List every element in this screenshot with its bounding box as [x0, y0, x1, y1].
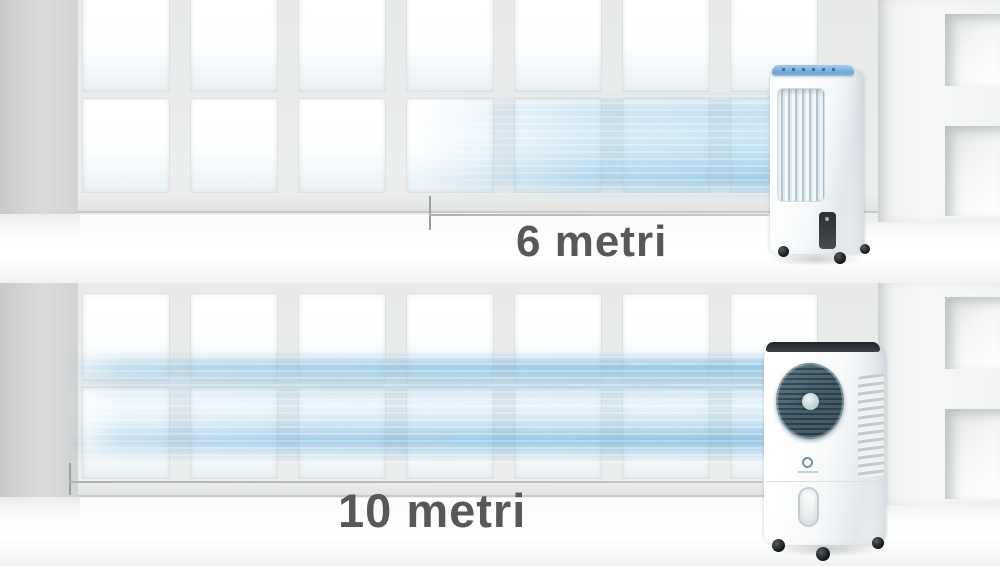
window-pane [82, 0, 170, 92]
wall-niche [945, 126, 1000, 216]
measurement-tick [429, 196, 431, 230]
window-pane [190, 0, 278, 92]
tower-cooler-control-strip [772, 65, 854, 76]
floor-reflection [80, 215, 810, 265]
caster-wheel [816, 547, 830, 561]
measurement-tick [69, 463, 71, 495]
window-pane [514, 0, 602, 92]
scene-10-metri: 10 metri [0, 283, 1000, 566]
fan-hub [802, 393, 819, 410]
wall-niche [945, 297, 1000, 369]
wall-niche [945, 409, 1000, 499]
tower-cooler [750, 60, 880, 266]
window-pane [82, 98, 170, 193]
tower-cooler-grille [777, 88, 825, 202]
caster-wheel [834, 252, 846, 264]
body-seam [766, 481, 882, 482]
round-fan-cooler [754, 335, 904, 557]
tower-cooler-display-panel [819, 212, 836, 249]
side-vent-louvers [858, 373, 884, 478]
right-wall [878, 0, 1000, 222]
knob-caption [798, 471, 818, 473]
power-knob [802, 457, 813, 468]
airflow-stream [412, 90, 790, 200]
window-pane [298, 98, 386, 193]
scene-6-metri: 6 metri [0, 0, 1000, 283]
wall-niche [945, 14, 1000, 86]
round-cooler-top-panel [766, 342, 880, 352]
tank-handle [798, 487, 819, 527]
caster-wheel [772, 539, 785, 552]
window-pane [622, 0, 710, 92]
window-pane-row [82, 0, 818, 92]
window-pane [298, 0, 386, 92]
airflow-stream [64, 351, 790, 463]
window-pane [190, 98, 278, 193]
window-pane [406, 0, 494, 92]
left-wall [0, 0, 78, 214]
distance-label: 6 metri [516, 217, 667, 267]
measurement-line [429, 214, 769, 216]
caster-wheel [860, 244, 870, 254]
comparison-image: 6 metri [0, 0, 1000, 566]
caster-wheel [778, 246, 789, 257]
caster-wheel [872, 537, 884, 549]
fan-face [776, 363, 844, 439]
distance-label: 10 metri [338, 483, 526, 538]
